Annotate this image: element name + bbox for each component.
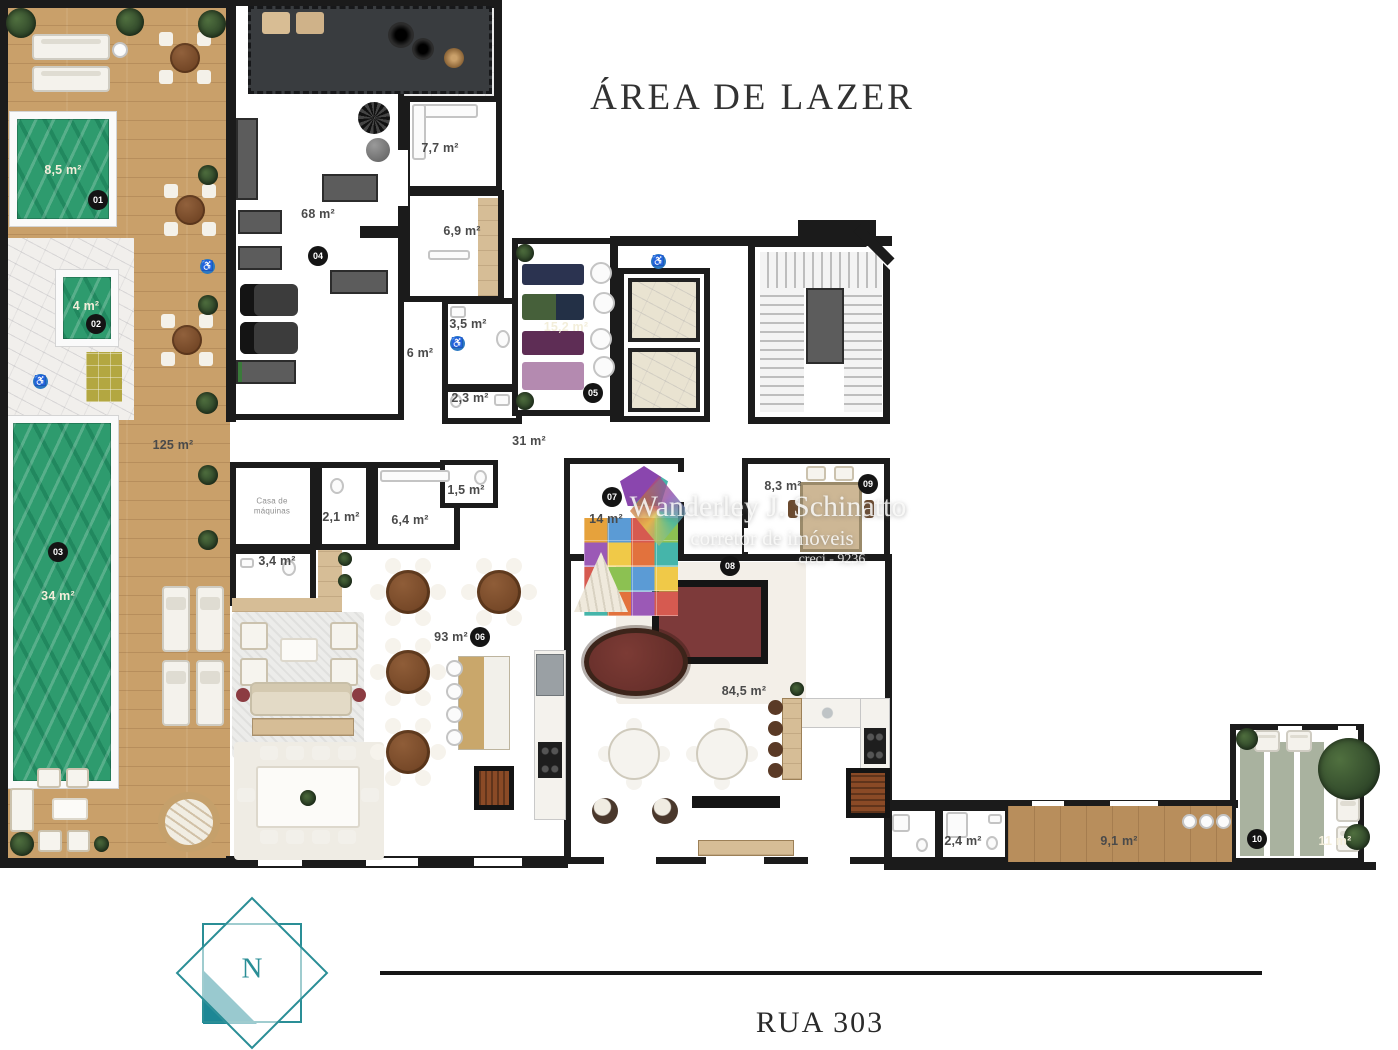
area-label-plunge-pool: 4 m² — [73, 299, 100, 313]
corridor-basin-1 — [1182, 814, 1197, 829]
locker-bench — [380, 470, 450, 482]
bar-stool-4 — [768, 763, 783, 778]
wc34-sink — [240, 558, 254, 568]
area-label-spa-pool: 8,5 m² — [44, 163, 81, 177]
deck-plant-2 — [198, 295, 218, 315]
yoga-mat-purple — [522, 331, 584, 355]
yoga-pouf-2 — [593, 292, 615, 314]
rattan-daybed — [158, 792, 220, 852]
garden-lounger-2 — [1286, 730, 1312, 752]
deck-tree-3 — [198, 10, 226, 38]
patio-chair-1 — [37, 768, 61, 788]
yoga-pouf-1 — [590, 262, 612, 284]
gym-door-gap — [398, 150, 408, 206]
meeting-chair-1 — [806, 466, 826, 481]
lounge-coffee-table — [280, 638, 318, 662]
corridor-basin-2 — [1199, 814, 1214, 829]
gym-rope-coil — [444, 48, 464, 68]
wc24-sink — [988, 814, 1002, 824]
yoga-plant-2 — [516, 392, 534, 410]
party-console — [698, 840, 794, 856]
mosaic-mat — [86, 352, 122, 402]
island-stool-2 — [446, 683, 463, 700]
kitchen-bar — [782, 698, 802, 780]
gym-tire-1 — [388, 22, 414, 48]
patio-chair-4 — [67, 830, 90, 852]
yoga-pouf-3 — [590, 328, 612, 350]
hall-sideboard — [232, 598, 342, 612]
window-gap-6 — [808, 857, 850, 865]
corridor-basin-3 — [1216, 814, 1231, 829]
bistro-table-1 — [592, 798, 618, 824]
area-label-changing: 6,9 m² — [443, 224, 480, 238]
patio-plant-2 — [94, 836, 109, 852]
deck-plant-4 — [198, 465, 218, 485]
deck-tree-2 — [116, 8, 144, 36]
meeting-door-gap — [744, 528, 752, 552]
area-label-machine-room: Casa de máquinas — [245, 496, 299, 515]
area-label-wc15: 1,5 m² — [447, 483, 484, 497]
bar-stool-1 — [768, 700, 783, 715]
yoga-mat-pink — [522, 362, 584, 390]
garden-tree — [1318, 738, 1380, 800]
street-name: RUA 303 — [700, 1006, 940, 1040]
area-label-wc35: 3,5 m² — [449, 317, 486, 331]
gym-machine-2 — [238, 246, 282, 270]
meeting-chair-4 — [864, 500, 874, 518]
pool-lounger-4 — [196, 660, 224, 726]
deck-plant-3 — [196, 392, 218, 414]
area-label-main-pool: 34 m² — [41, 589, 75, 603]
party-round-table-1 — [608, 728, 660, 780]
pool-lounger-3 — [162, 660, 190, 726]
lounge-sofa — [250, 682, 352, 716]
area-label-wc24: 2,4 m² — [944, 834, 981, 848]
marker-02: 02 — [86, 314, 106, 334]
wc35-toilet — [496, 330, 510, 348]
gym-rack — [236, 118, 258, 200]
area-label-wc21: 2,1 m² — [322, 510, 359, 524]
island-stool-3 — [446, 706, 463, 723]
kitchenette-stove — [538, 742, 562, 778]
compass-north-letter: N — [242, 953, 263, 986]
area-label-meeting: 8,3 m² — [764, 479, 801, 493]
deck-lounger-1 — [32, 34, 110, 60]
bar-stool-2 — [768, 721, 783, 736]
lounge-armchair-3 — [330, 622, 358, 650]
deck-side-table — [112, 42, 128, 58]
patio-chair-3 — [38, 830, 62, 852]
gym-ball — [366, 138, 390, 162]
meeting-chair-2 — [834, 466, 854, 481]
changing-bench — [428, 250, 470, 260]
area-label-hall6: 6 m² — [407, 346, 434, 360]
patio-chair-2 — [66, 768, 89, 788]
kitchenette-fridge — [536, 654, 564, 696]
gym-fan-wheel — [358, 102, 390, 134]
marker-05: 05 — [583, 383, 603, 403]
area-label-wc34: 3,4 m² — [258, 554, 295, 568]
marker-10: 10 — [1247, 829, 1267, 849]
wing-bottom-wall — [884, 862, 1376, 870]
street-line — [380, 971, 1262, 975]
accessible-icon-wc: ♿ — [450, 336, 465, 351]
gym-machine-1 — [238, 210, 282, 234]
area-label-kids: 14 m² — [589, 512, 623, 526]
area-label-lounge: 93 m² — [434, 630, 468, 644]
kids-door-gap — [678, 472, 686, 502]
area-label-wc23: 2,3 m² — [451, 391, 488, 405]
window-gap-5 — [706, 857, 764, 865]
gym-rower — [236, 360, 296, 384]
meeting-chair-3 — [788, 500, 798, 518]
stair-core — [806, 288, 844, 364]
marker-04: 04 — [308, 246, 328, 266]
island-stool-4 — [446, 729, 463, 746]
pool-lounger-2 — [196, 586, 224, 652]
party-bench — [692, 796, 780, 808]
accessible-icon-gym-edge: ♿ — [200, 259, 215, 274]
page-title: ÁREA DE LAZER — [580, 76, 925, 119]
deck-plant-5 — [198, 530, 218, 550]
bistro-table-2 — [652, 798, 678, 824]
gym-mat-pad-1 — [262, 12, 290, 34]
gym-tire-2 — [412, 38, 434, 60]
dining-centerpiece — [300, 790, 316, 806]
floor-plan: 8,5 m² 4 m² 34 m² 125 m² 68 m² 7,7 m² 6,… — [0, 0, 1398, 1050]
deck-gym-wall — [226, 0, 236, 422]
bar-stool-3 — [768, 742, 783, 757]
area-label-hall31: 31 m² — [512, 434, 546, 448]
gym-stub-wall — [360, 226, 408, 238]
lounge-grill — [474, 766, 514, 810]
patio-plant-1 — [10, 832, 34, 856]
yoga-pouf-4 — [593, 356, 615, 378]
lounge-island-counter — [458, 656, 510, 750]
wing-shower — [892, 814, 910, 832]
yoga-plant-1 — [516, 244, 534, 262]
stair-top-run — [760, 252, 882, 288]
area-label-service-corridor: 9,1 m² — [1100, 834, 1137, 848]
gym-treadmill-1 — [240, 284, 298, 316]
patio-sofa — [10, 788, 34, 832]
marker-07: 07 — [602, 487, 622, 507]
oval-dining-table — [584, 628, 688, 696]
area-label-yoga: 15,2 m² — [544, 320, 588, 334]
wing-toilet — [916, 838, 928, 852]
wc24-toilet — [986, 836, 998, 850]
marker-08: 08 — [720, 556, 740, 576]
yoga-mat-navy — [522, 264, 584, 285]
gym-treadmill-2 — [240, 322, 298, 354]
gym-ext-right-wall — [494, 0, 502, 100]
window-gap-4 — [604, 857, 656, 865]
lounge-armchair-1 — [240, 622, 268, 650]
pool-lounger-1 — [162, 586, 190, 652]
hall-left-wall — [610, 238, 618, 422]
gym-mat-pad-2 — [296, 12, 324, 34]
area-label-party: 84,5 m² — [722, 684, 766, 698]
garden-lounger-1 — [1254, 730, 1280, 752]
window-gap-3 — [474, 858, 522, 866]
lounge-pot-1 — [236, 688, 250, 702]
lounge-tv-console — [252, 718, 354, 736]
area-label-deck: 125 m² — [153, 438, 194, 452]
console-plant-2 — [338, 574, 352, 588]
accessible-icon-hall: ♿ — [651, 254, 666, 269]
marker-09: 09 — [858, 474, 878, 494]
deck-plant-1 — [198, 165, 218, 185]
north-compass: N — [175, 898, 329, 1050]
party-round-table-2 — [696, 728, 748, 780]
gym-dumbbell-bench — [330, 270, 388, 294]
patio-table — [52, 798, 88, 820]
meeting-table — [800, 482, 862, 552]
area-label-garden: 11 m² — [1319, 834, 1352, 848]
console-plant-1 — [338, 552, 352, 566]
marker-06: 06 — [470, 627, 490, 647]
garden-window-gap-2 — [1338, 726, 1356, 731]
yoga-mat-green — [522, 294, 584, 320]
deck-lounger-2 — [32, 66, 110, 92]
outer-wall-top-deck — [0, 0, 234, 8]
kitchen-stove — [864, 728, 886, 764]
accessible-icon-deck: ♿ — [33, 374, 48, 389]
wc21-toilet — [330, 478, 344, 494]
marker-03: 03 — [48, 542, 68, 562]
party-grill — [846, 768, 890, 818]
elevator-car-1 — [628, 278, 700, 342]
island-stool-1 — [446, 660, 463, 677]
wc23-sink — [494, 394, 510, 406]
elevator-car-2 — [628, 348, 700, 412]
area-label-sauna: 7,7 m² — [421, 141, 458, 155]
area-label-gym: 68 m² — [301, 207, 335, 221]
outer-wall-left — [0, 0, 8, 868]
area-label-locker: 6,4 m² — [391, 513, 428, 527]
lounge-pot-2 — [352, 688, 366, 702]
party-plant — [790, 682, 804, 696]
marker-01: 01 — [88, 190, 108, 210]
wc-21-room — [316, 462, 372, 550]
changing-closet — [478, 198, 498, 296]
deck-bottom-wall — [0, 858, 232, 868]
garden-bush-1 — [1236, 728, 1258, 750]
gym-bench-press — [322, 174, 378, 202]
deck-tree-1 — [6, 8, 36, 38]
